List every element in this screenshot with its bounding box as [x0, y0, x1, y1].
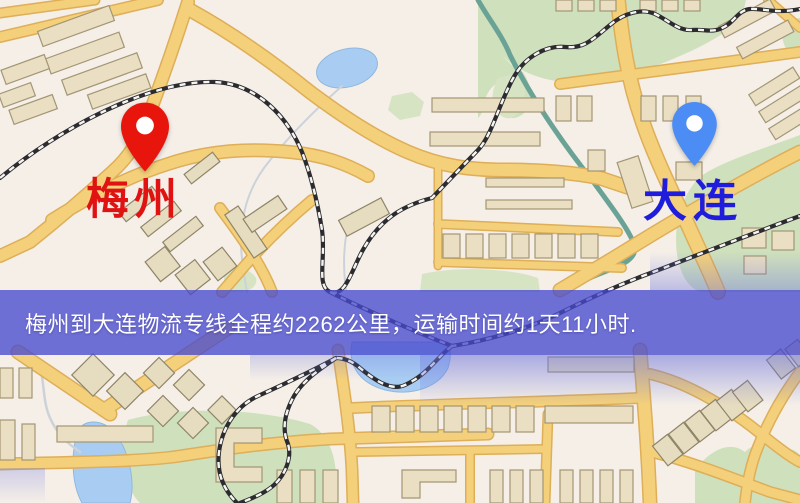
route-info-banner: 梅州到大连物流专线全程约2262公里，运输时间约1天11小时. — [0, 290, 800, 355]
destination-city-label: 大连 — [643, 180, 743, 224]
origin-pin-icon — [121, 101, 169, 173]
destination-pin-icon — [672, 102, 717, 166]
map-background — [0, 0, 800, 503]
route-info-text: 梅州到大连物流专线全程约2262公里，运输时间约1天11小时. — [25, 307, 637, 339]
origin-city-label: 梅州 — [86, 179, 182, 222]
map-screenshot: 梅州 大连 梅州到大连物流专线全程约2262公里，运输时间约1天11小时. — [0, 0, 800, 503]
